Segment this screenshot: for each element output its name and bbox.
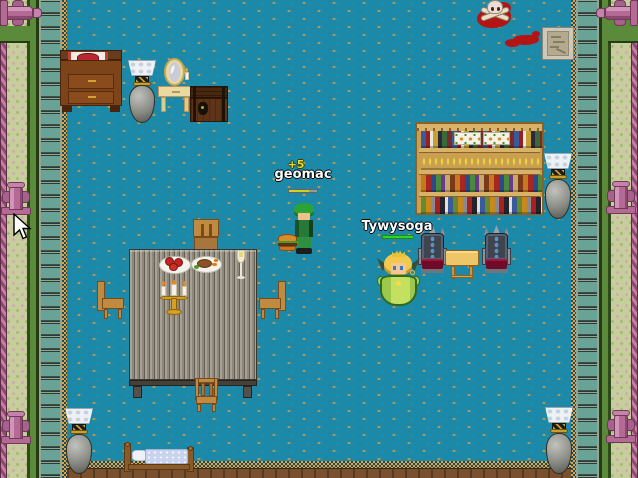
chest-band	[193, 86, 196, 122]
player-name-label: Tywysoga	[361, 220, 432, 233]
book-row	[421, 153, 542, 170]
table-frame	[129, 380, 257, 386]
wall-green-column	[611, 0, 631, 478]
skull-and-crossbones	[477, 0, 513, 30]
mirror-frame	[164, 58, 185, 86]
gargoyle-statue-left-bottom	[0, 411, 32, 444]
wooden-chair	[193, 219, 219, 251]
statue-part	[9, 186, 23, 210]
throne	[482, 225, 511, 273]
corner-green-patch	[0, 26, 30, 43]
blood-blob	[532, 31, 540, 37]
dresser-drawer	[68, 91, 114, 104]
chair-slat	[201, 224, 204, 238]
stone-vase-body	[546, 433, 572, 474]
stone-vase-body	[545, 179, 571, 219]
wooden-chair	[195, 378, 218, 412]
chair-seat	[259, 298, 281, 309]
statue-part	[627, 419, 635, 431]
candle	[185, 72, 189, 80]
lamp-shade	[544, 153, 572, 169]
statue-part	[22, 191, 30, 203]
side-table	[445, 247, 479, 283]
book-row	[421, 131, 542, 148]
candle	[171, 284, 177, 296]
dresser-foot	[62, 106, 72, 112]
gown	[380, 275, 417, 306]
bed-rail	[128, 464, 190, 470]
throne-back	[485, 233, 508, 261]
blanket	[145, 449, 188, 464]
skull-eye	[491, 7, 494, 11]
chair-leg	[104, 309, 108, 319]
chair-leg	[275, 309, 279, 319]
wall-rope-column	[631, 0, 638, 478]
gargoyle-statue-right-middle	[605, 181, 637, 214]
player-geomac[interactable]: +5 geomac	[270, 158, 340, 258]
apple	[169, 263, 178, 271]
table-leg	[133, 386, 142, 398]
stone-lamp-vase	[542, 407, 576, 474]
hp-fill	[289, 190, 309, 192]
statue-part	[614, 414, 628, 438]
statue-part	[33, 8, 42, 18]
chair-seat	[102, 298, 124, 309]
statue-part	[12, 0, 24, 7]
statue-part	[2, 191, 10, 203]
hamburger-item[interactable]	[277, 232, 298, 251]
flute-liquid	[239, 252, 243, 257]
throne-base	[485, 269, 508, 273]
statue-part	[612, 181, 630, 187]
book-row	[421, 175, 542, 192]
stone-lamp-vase	[62, 408, 96, 474]
brooch	[396, 281, 401, 286]
chest-band	[222, 86, 225, 122]
cursor-arrow-icon	[12, 213, 32, 241]
candelabra-base	[166, 309, 182, 315]
mirror-shine	[170, 65, 176, 74]
chair-leg	[261, 309, 265, 319]
throne-cushion	[486, 259, 507, 269]
throne-gems	[494, 236, 499, 258]
shelf-top-rail	[417, 124, 542, 131]
chair-seat	[196, 396, 217, 404]
keyhole	[201, 106, 204, 109]
face	[391, 263, 406, 274]
floral-panel	[454, 132, 481, 145]
candle	[161, 286, 166, 296]
dresser	[60, 50, 122, 112]
statue-part	[614, 19, 626, 26]
floral-panel	[483, 132, 510, 145]
wall-tile-column	[39, 0, 62, 478]
statue-part	[12, 19, 24, 26]
flute-stem	[240, 263, 242, 276]
lamp-shade	[545, 407, 573, 423]
chair-leg	[212, 404, 216, 412]
stone-vase-body	[129, 85, 155, 123]
left-wall	[0, 0, 67, 478]
gargoyle-statue-left-middle	[0, 182, 32, 215]
bed-knob	[188, 446, 193, 451]
bookshelf	[415, 122, 544, 215]
wall-rope-column	[0, 0, 7, 478]
hp-bar	[288, 189, 318, 193]
hp-bar	[382, 235, 414, 239]
tablet-marking	[551, 36, 561, 38]
drawer-handle	[88, 80, 96, 82]
wooden-chest	[190, 86, 228, 122]
statue-part	[7, 411, 25, 417]
mirror-glass	[169, 62, 180, 82]
eye	[400, 266, 403, 270]
candle	[182, 286, 187, 296]
statue-part	[607, 190, 615, 202]
player-name-label: geomac	[274, 168, 331, 181]
gold-earring	[410, 270, 415, 275]
wooden-chair	[259, 281, 286, 319]
chair-slat	[209, 383, 213, 396]
statue-part	[7, 6, 33, 20]
statue-part	[22, 420, 30, 432]
carrot	[212, 263, 217, 266]
tablet-marking	[553, 41, 565, 43]
chair-slat	[201, 383, 205, 396]
vanity-leg	[161, 97, 166, 112]
statue-part	[630, 0, 638, 26]
statue-part	[614, 0, 626, 7]
statue-part	[2, 420, 10, 432]
bed-knob	[125, 442, 130, 447]
table-leg	[243, 386, 252, 398]
vanity-leg	[184, 97, 189, 112]
book-row	[421, 197, 542, 214]
stone-lamp-vase	[126, 60, 158, 124]
statue-part	[596, 8, 605, 18]
stone-lamp-vase	[542, 153, 574, 219]
vanity-body	[158, 86, 192, 97]
statue-part	[612, 410, 630, 416]
flute-foot	[237, 276, 245, 279]
stone-vase-body	[66, 434, 92, 474]
garnish	[194, 265, 199, 269]
carrot	[214, 259, 218, 262]
blood-smear	[505, 31, 541, 49]
tablet-marking	[556, 48, 566, 54]
dresser-foot	[110, 106, 120, 112]
chair-leg	[197, 404, 201, 412]
wooden-chair	[97, 281, 124, 319]
side-table-top	[445, 250, 479, 266]
throne-arm	[507, 248, 511, 265]
dresser-drawer	[68, 74, 114, 89]
mouse-cursor	[12, 213, 32, 241]
statue-part	[9, 415, 23, 439]
vanity-mirror-table	[158, 58, 192, 112]
drawer-handle	[172, 91, 180, 93]
right-wall	[571, 0, 638, 478]
gargoyle-statue-right-bottom	[605, 410, 637, 443]
statue-part	[7, 182, 25, 188]
statue-part	[607, 419, 615, 431]
bed	[124, 441, 194, 475]
champagne-flute	[236, 250, 246, 281]
eye	[393, 266, 396, 270]
player-sprite[interactable]	[377, 250, 420, 307]
bun-bottom	[279, 246, 296, 251]
plate-of-apples	[159, 254, 191, 275]
chair-slat	[209, 224, 212, 238]
gargoyle-statue-top-right	[594, 0, 638, 26]
chest-keyhole-plate	[198, 102, 208, 115]
roast	[197, 259, 212, 268]
game-viewport[interactable]: +5 geomac Tywysoga	[0, 0, 638, 478]
skull-eye	[497, 7, 500, 11]
chair-back	[193, 219, 219, 237]
chair-leg	[118, 309, 122, 319]
blood-blob	[505, 39, 520, 47]
stone-tablet	[542, 27, 574, 60]
lamp-shade	[65, 408, 93, 424]
side-table-brace	[451, 275, 473, 278]
player-tywysoga[interactable]: Tywysoga	[360, 218, 436, 318]
statue-part	[627, 190, 635, 202]
gargoyle-statue-top-left	[0, 0, 44, 26]
statue-part	[614, 185, 628, 209]
legs	[297, 237, 311, 248]
flute-bowl	[237, 250, 245, 263]
lamp-shade	[128, 60, 156, 76]
tablet-face	[547, 31, 569, 56]
hp-fill	[383, 236, 413, 238]
skull-cranium	[487, 0, 503, 14]
drawer-handle	[88, 96, 96, 98]
statue-part	[605, 6, 631, 20]
wall-tile-column	[576, 0, 599, 478]
candelabra	[158, 280, 190, 316]
shoes	[296, 248, 312, 254]
roast-dinner-plate	[191, 255, 222, 274]
